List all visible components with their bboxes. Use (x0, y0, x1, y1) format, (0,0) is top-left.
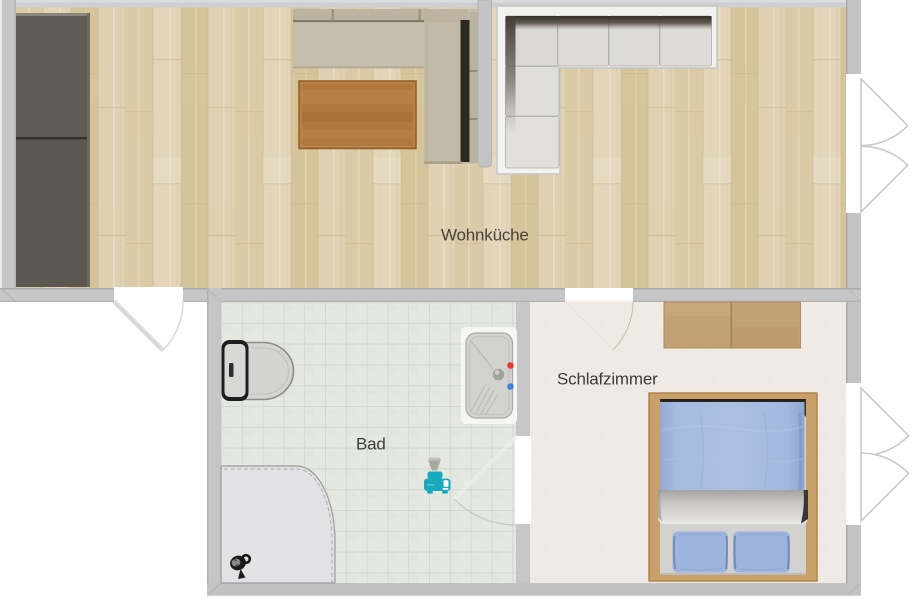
svg-text:Schlafzimmer: Schlafzimmer (557, 370, 658, 389)
svg-text:Wohnküche: Wohnküche (441, 226, 529, 245)
svg-text:Bad: Bad (356, 435, 386, 454)
